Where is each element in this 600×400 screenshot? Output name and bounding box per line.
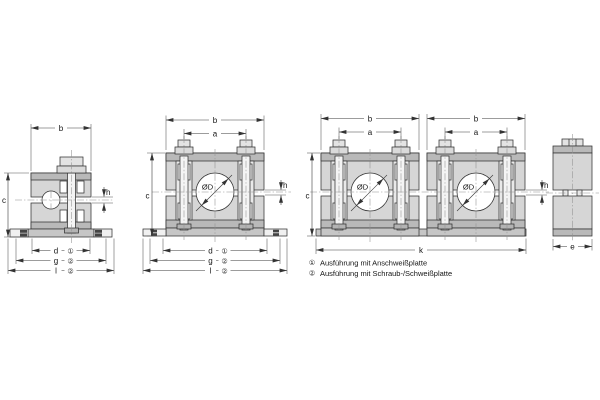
dimension-h: h — [526, 180, 548, 205]
technical-drawing: ØD b — [0, 0, 600, 400]
dim-label-d: d — [208, 247, 212, 256]
ref-mark-1: ① — [67, 248, 73, 256]
dim-label-g: g — [54, 257, 58, 266]
bolt-slot — [77, 181, 84, 193]
dim-label-c: c — [306, 192, 310, 201]
dim-label-c: c — [2, 196, 6, 205]
dim-label-a: a — [213, 130, 218, 139]
section-hatch — [95, 230, 102, 233]
view-front-single-clamp: b a c h d ① — [143, 116, 291, 276]
bolt-slot — [60, 181, 67, 193]
dim-label-a: a — [474, 128, 479, 137]
section-hatch — [273, 233, 279, 236]
dimension-a1: a — [339, 128, 401, 140]
dimension-c: c — [2, 173, 29, 237]
ref-mark-2: ② — [221, 269, 227, 276]
dimension-h: h — [265, 180, 287, 205]
ref-mark-1: ① — [221, 248, 227, 256]
dim-label-c: c — [146, 192, 150, 201]
dimension-e: e — [553, 239, 592, 252]
dim-label-b: b — [368, 115, 373, 124]
dimension-k: k — [316, 239, 526, 256]
section-hatch — [20, 233, 27, 236]
view-side-single-clamp: b c h d ① — [2, 123, 114, 276]
clamp — [166, 136, 264, 242]
clamp-2 — [427, 136, 525, 242]
legend: ① Ausführung mit Anschweißplatte ② Ausfü… — [309, 259, 452, 279]
dim-label-h: h — [283, 181, 287, 190]
dim-label-g: g — [208, 257, 212, 266]
dimension-c: c — [146, 153, 166, 236]
dim-label-l: l — [55, 267, 57, 276]
dim-label-h: h — [106, 188, 110, 197]
top-cover-strip — [31, 173, 91, 180]
dim-label-a: a — [368, 128, 373, 137]
dimension-a: a — [184, 129, 246, 139]
drawing-canvas: ØD b — [0, 0, 600, 400]
view-side-profile: e — [546, 134, 599, 252]
clamp-1 — [321, 136, 419, 242]
bottom-cover-strip — [31, 222, 91, 229]
dimension-a2: a — [445, 128, 507, 140]
base-plate — [28, 229, 94, 237]
bolt-slot — [60, 210, 67, 222]
view-front-twin-clamps: b a b a c — [306, 114, 550, 255]
dimension-c: c — [306, 153, 321, 236]
legend-text-1: Ausführung mit Anschweißplatte — [320, 259, 427, 268]
dimension-d: d ① — [32, 239, 90, 256]
ref-mark-2: ② — [221, 259, 227, 266]
bolt-slot — [77, 210, 84, 222]
dim-label-h: h — [544, 181, 548, 190]
dim-label-l: l — [210, 267, 212, 276]
dim-label-b: b — [59, 124, 64, 133]
legend-ref-2: ② — [309, 271, 315, 278]
section-hatch — [20, 230, 27, 233]
ref-mark-2: ② — [67, 269, 73, 276]
dim-label-b: b — [213, 116, 218, 125]
legend-text-2: Ausführung mit Schraub-/Schweißplatte — [320, 269, 452, 278]
section-hatch — [95, 233, 102, 236]
ref-mark-2: ② — [67, 259, 73, 266]
section-hatch — [273, 230, 279, 233]
dim-label-b: b — [474, 115, 479, 124]
dim-label-e: e — [570, 243, 575, 252]
dim-label-d: d — [54, 247, 58, 256]
legend-ref-1: ① — [309, 259, 315, 267]
